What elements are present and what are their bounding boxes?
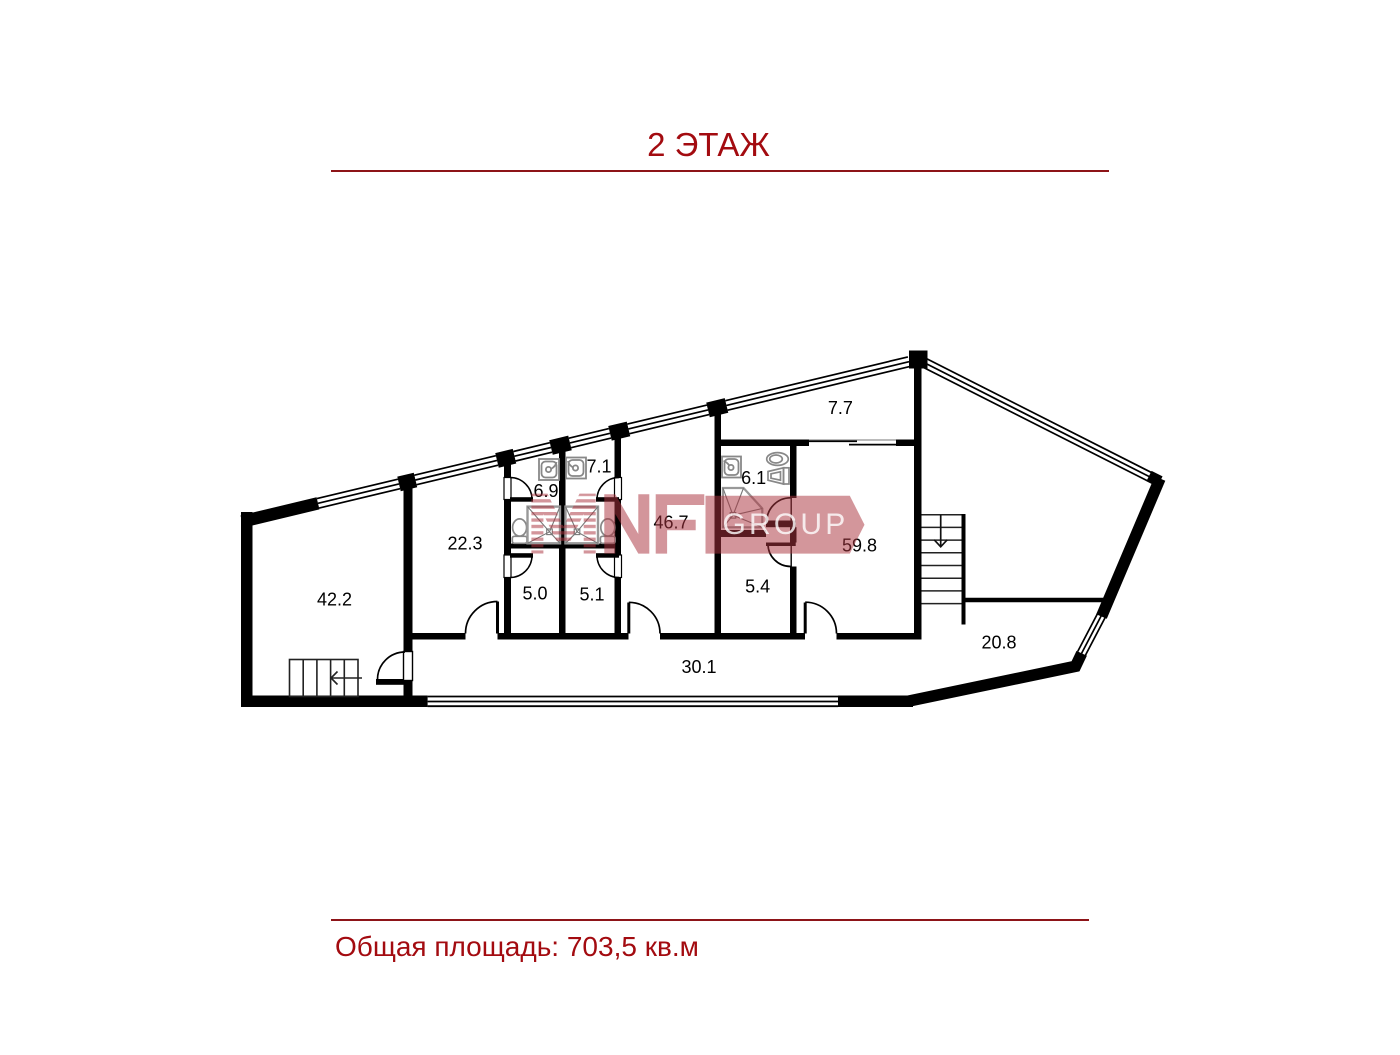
- svg-text:6.1: 6.1: [741, 468, 766, 488]
- svg-text:7.7: 7.7: [828, 398, 853, 418]
- svg-text:30.1: 30.1: [681, 657, 716, 677]
- svg-text:20.8: 20.8: [981, 633, 1016, 653]
- svg-text:5.1: 5.1: [579, 585, 604, 605]
- svg-text:22.3: 22.3: [447, 534, 482, 554]
- svg-text:5.0: 5.0: [522, 584, 547, 604]
- svg-text:5.4: 5.4: [745, 577, 770, 597]
- svg-text:42.2: 42.2: [317, 590, 352, 610]
- svg-text:7.1: 7.1: [586, 457, 611, 477]
- svg-text:GROUP: GROUP: [722, 508, 848, 541]
